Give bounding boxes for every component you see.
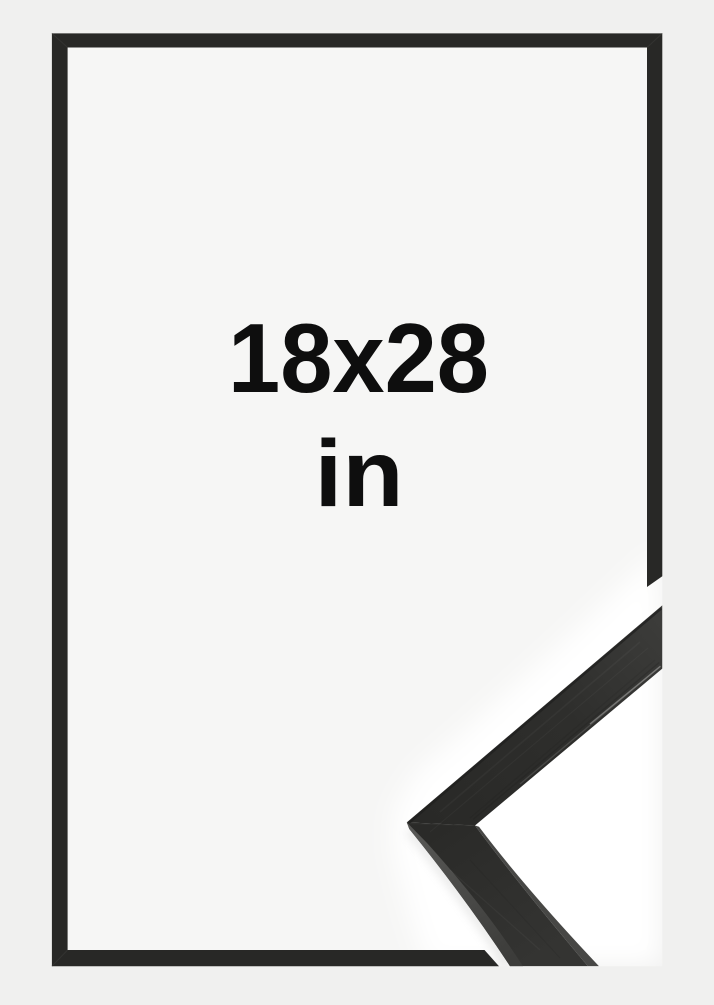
svg-text:in: in	[315, 421, 404, 527]
svg-text:18x28: 18x28	[228, 303, 489, 413]
